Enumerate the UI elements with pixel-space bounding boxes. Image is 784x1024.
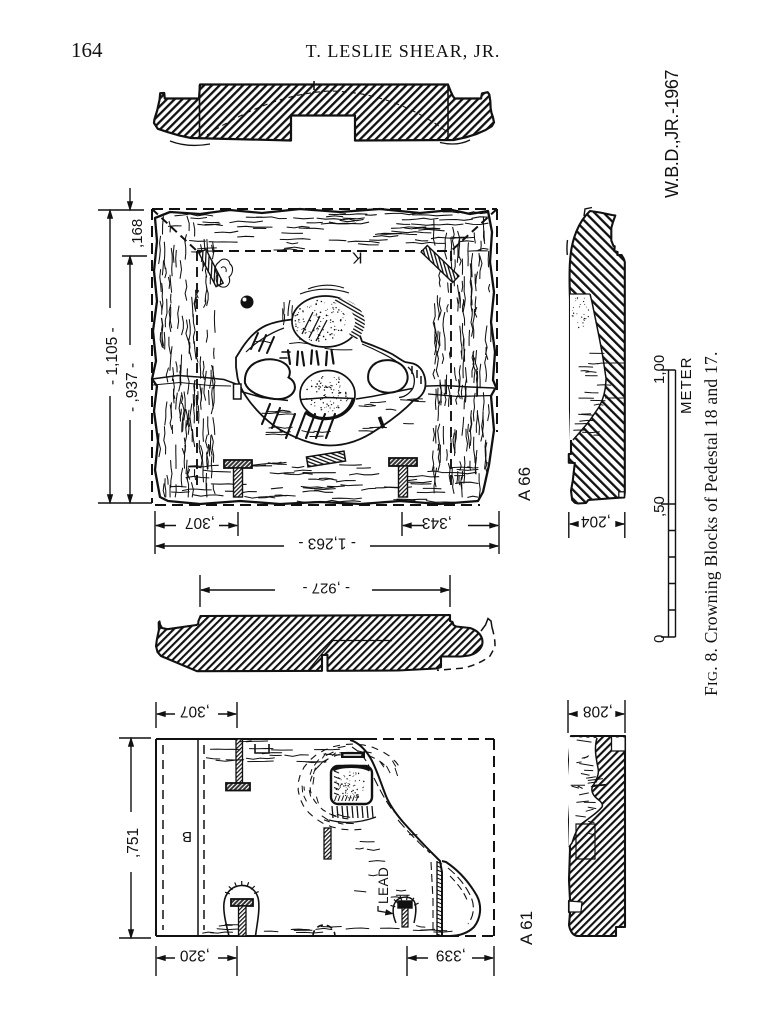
svg-text:B: B [182, 828, 192, 845]
svg-text:,208: ,208 [583, 703, 613, 720]
svg-text:,204: ,204 [580, 513, 611, 530]
svg-text:,168: ,168 [129, 219, 146, 248]
svg-text:,343: ,343 [422, 514, 452, 531]
svg-text:- 1,263 -: - 1,263 - [298, 535, 356, 552]
svg-text:,50: ,50 [651, 496, 668, 517]
svg-text:METER: METER [678, 357, 695, 415]
svg-text:,307: ,307 [185, 514, 215, 531]
svg-text:,751: ,751 [125, 828, 142, 858]
svg-text:,339: ,339 [436, 947, 466, 964]
svg-text:K: K [352, 249, 363, 266]
svg-text:W.B.D.,JR.-1967: W.B.D.,JR.-1967 [662, 70, 682, 198]
svg-text:0: 0 [651, 635, 668, 643]
svg-text:A 61: A 61 [517, 911, 536, 945]
svg-text:T. LESLIE SHEAR, JR.: T. LESLIE SHEAR, JR. [306, 41, 501, 61]
svg-text:A 66: A 66 [515, 467, 534, 501]
svg-text:- 1,105 -: - 1,105 - [104, 327, 121, 385]
svg-text:164: 164 [71, 38, 103, 62]
svg-text:FIG. 8. Crowning Blocks of Pe: FIG. 8. Crowning Blocks of Pedestal 18 a… [701, 351, 721, 696]
svg-text:,307: ,307 [180, 703, 210, 720]
svg-text:1,00: 1,00 [651, 355, 668, 384]
svg-text:- ,937 -: - ,937 - [124, 363, 141, 412]
svg-text:,320: ,320 [179, 947, 210, 964]
svg-text:- ,927 -: - ,927 - [302, 580, 350, 597]
svg-text:LEAD: LEAD [376, 867, 391, 904]
